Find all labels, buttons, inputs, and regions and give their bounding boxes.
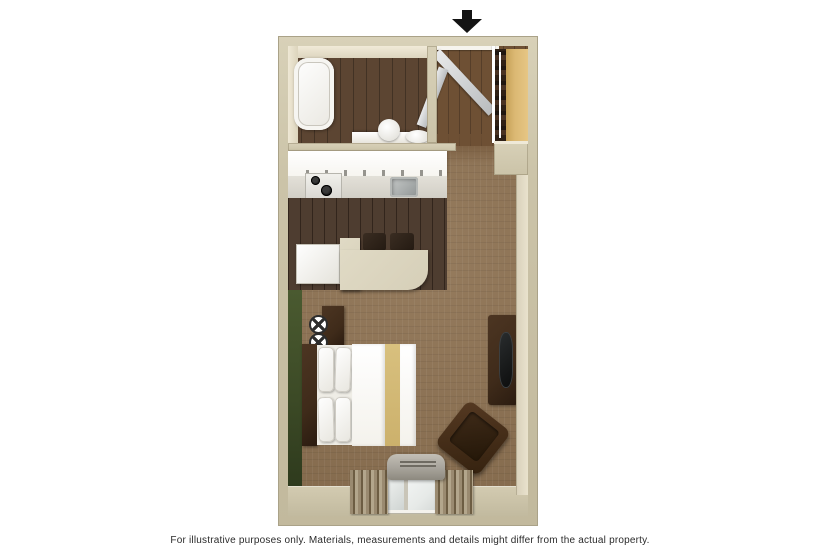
- bathroom-wall-top: [288, 46, 427, 58]
- closet-lower-wall-edge: [494, 141, 528, 144]
- toilet: [378, 119, 400, 141]
- bed-foot-white: [400, 344, 416, 446]
- closet-rod: [499, 52, 501, 138]
- window-mullion: [404, 478, 408, 510]
- pillow-1: [318, 347, 334, 392]
- bed-duvet: [352, 344, 385, 446]
- wall-sconce-top: [309, 315, 328, 334]
- floorplan-image: For illustrative purposes only. Material…: [0, 0, 820, 560]
- stove-burner-rear: [311, 176, 320, 185]
- bar-stool-right: [390, 233, 414, 251]
- armchair: [434, 399, 511, 476]
- tv: [499, 332, 513, 388]
- interior-floor-carpet: [288, 46, 528, 516]
- green-accent-wall: [288, 290, 302, 488]
- entry-threshold: [437, 46, 499, 50]
- entrance-arrow-icon: [452, 10, 482, 34]
- pillow-2: [334, 347, 352, 393]
- ptac-vent: [400, 459, 436, 467]
- floor-plan: [278, 36, 538, 526]
- bar-counter-horizontal: [340, 250, 428, 290]
- ptac-ac-unit: [387, 454, 445, 480]
- curtain-left: [350, 470, 388, 514]
- right-wall-face: [516, 175, 528, 495]
- closet-lower-wall: [494, 141, 528, 175]
- pillow-4: [335, 397, 351, 442]
- bathtub: [294, 58, 334, 130]
- bar-stool-left: [363, 233, 386, 251]
- closet-shelf: [506, 49, 528, 141]
- refrigerator: [296, 244, 340, 284]
- arrow-head: [452, 19, 482, 33]
- bathroom-kitchen-wall: [288, 143, 456, 151]
- disclaimer-caption: For illustrative purposes only. Material…: [0, 535, 820, 546]
- pillow-3: [317, 397, 335, 443]
- bed-gold-runner: [385, 344, 400, 446]
- bed-headboard: [302, 344, 317, 446]
- bathroom-entry-divider-wall: [427, 46, 437, 143]
- armchair-seat: [448, 410, 500, 462]
- stove-burner-front: [321, 185, 332, 196]
- kitchen-sink: [390, 177, 418, 197]
